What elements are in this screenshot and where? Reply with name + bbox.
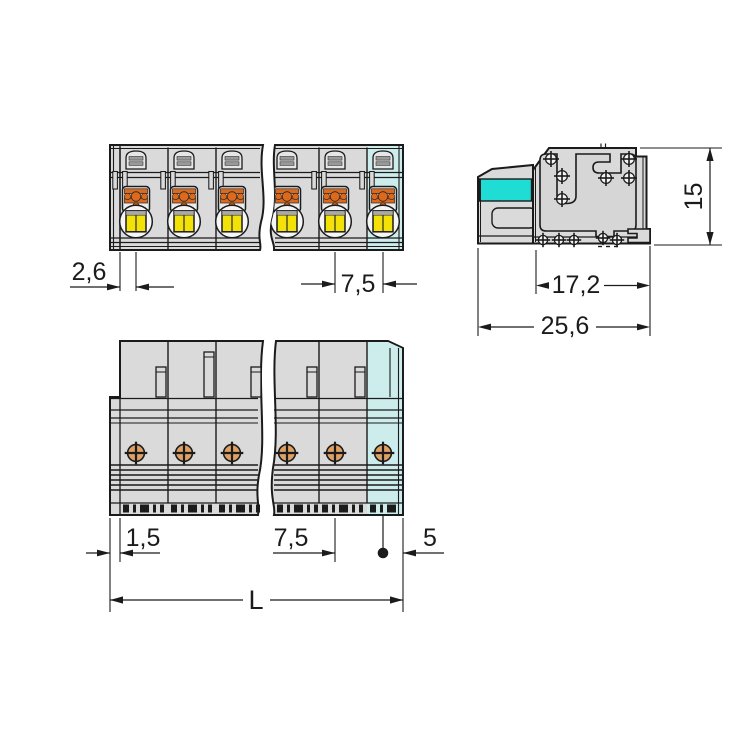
front-poles [271,151,400,238]
connector-drawing-svg: 2,6 7,5 [0,0,750,750]
dim-top-pitch: 7,5 [273,518,335,562]
front-view: 2,6 7,5 [70,145,417,298]
dim-side-height: 15 [640,148,722,245]
dim-front-edge-offset: 2,6 [70,252,174,291]
top-cyan-pole-highlight [367,342,402,514]
dim-label-top-end-offset: 5 [423,524,437,552]
dim-label-side-total-depth: 25,6 [541,312,590,340]
dim-top-total-length: L [110,585,403,615]
reference-dot [378,548,389,559]
side-inner-contour [540,154,636,237]
dim-label-top-pitch: 7,5 [274,524,309,552]
front-poles [120,151,249,238]
side-mating-end [478,165,533,244]
technical-drawing-page: 2,6 7,5 [0,0,750,750]
dim-label-front-edge-offset: 2,6 [72,258,107,286]
dim-front-pitch: 7,5 [301,252,417,298]
dim-top-edge-offset: 1,5 [86,518,160,612]
top-pole-axis-reference [378,515,389,558]
dim-label-top-edge-offset: 1,5 [126,524,161,552]
dim-label-front-pitch: 7,5 [341,270,376,298]
dim-label-side-body-depth: 17,2 [552,271,601,299]
dim-label-side-height: 15 [680,183,708,211]
top-view: 1,5 7,5 5 L [86,341,444,615]
side-view: 15 17,2 25,6 [478,144,722,341]
dim-label-top-total-length: L [248,585,263,615]
top-group-a-body [110,341,263,515]
dim-top-end-offset: 5 [403,518,444,612]
side-cyan-stripe [480,179,532,201]
